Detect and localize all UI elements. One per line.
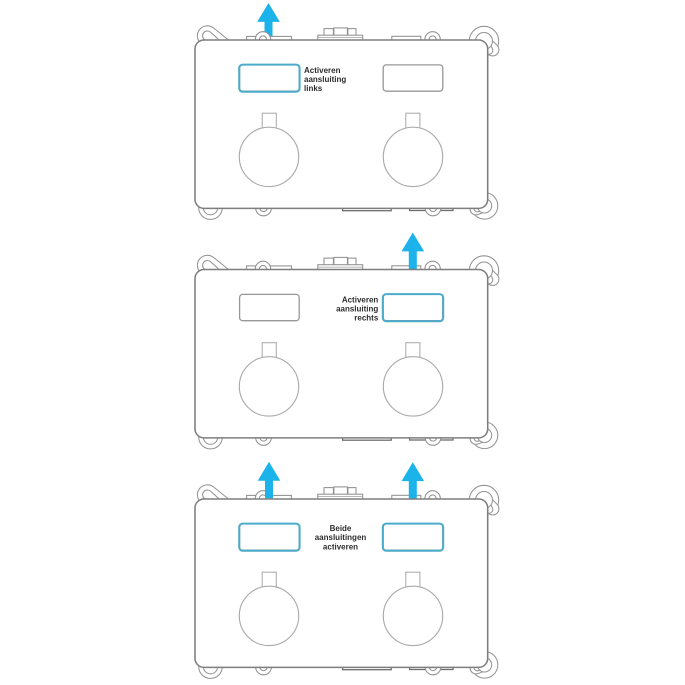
svg-text:aansluiting: aansluiting [336, 305, 378, 314]
svg-text:rechts: rechts [354, 314, 379, 323]
svg-text:Activeren: Activeren [304, 66, 341, 75]
svg-text:Activeren: Activeren [342, 295, 379, 304]
svg-text:Beide: Beide [330, 524, 352, 533]
svg-text:activeren: activeren [323, 542, 358, 551]
svg-text:aansluitingen: aansluitingen [315, 533, 367, 542]
svg-text:links: links [304, 84, 323, 93]
svg-text:aansluiting: aansluiting [304, 75, 346, 84]
